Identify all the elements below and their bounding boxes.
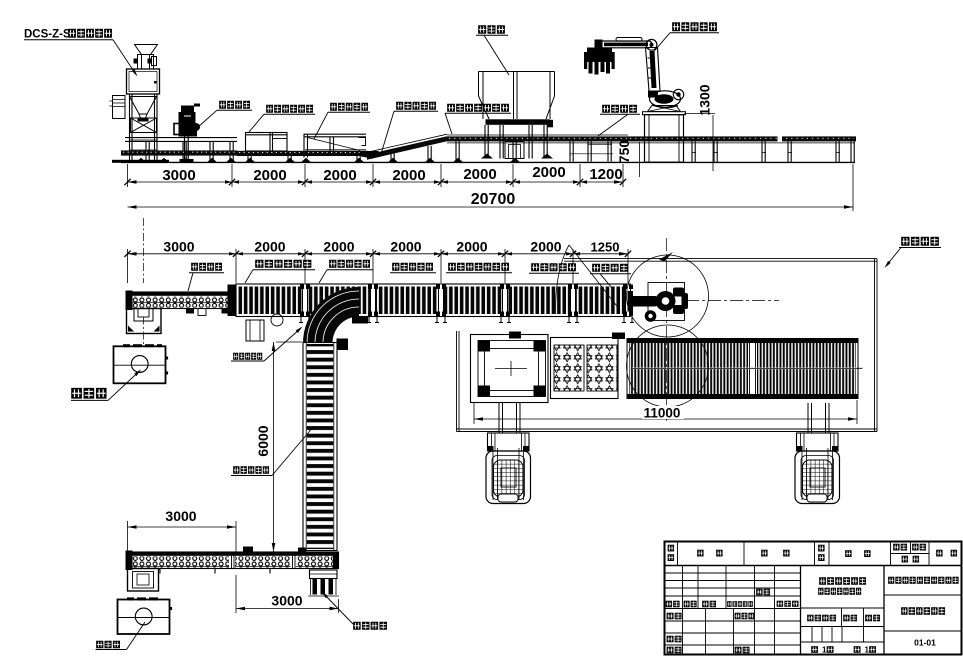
svg-text:2000: 2000 [323,239,354,255]
svg-text:1300: 1300 [697,84,713,115]
svg-text:3000: 3000 [162,167,195,184]
svg-text:6000: 6000 [255,425,271,456]
svg-text:2000: 2000 [456,239,487,255]
svg-text:1: 1 [865,646,870,655]
svg-text:2000: 2000 [390,239,421,255]
svg-text:11000: 11000 [644,406,681,421]
svg-text:1200: 1200 [589,166,622,183]
svg-text:2000: 2000 [254,239,285,255]
svg-text:01-01: 01-01 [914,638,936,648]
svg-text:1250: 1250 [591,240,620,255]
svg-text:2000: 2000 [392,167,425,184]
svg-text:750: 750 [616,140,632,164]
svg-text:2000: 2000 [530,239,561,255]
svg-text:1: 1 [822,646,827,655]
svg-text:2000: 2000 [253,167,286,184]
svg-text:3000: 3000 [163,239,194,255]
svg-text:3000: 3000 [165,508,196,524]
svg-text:2000: 2000 [532,164,565,181]
svg-text:DCS-Z-S: DCS-Z-S [24,29,71,41]
svg-text:2000: 2000 [463,166,496,183]
svg-text:20700: 20700 [471,191,516,208]
svg-text:2000: 2000 [323,167,356,184]
svg-text:3000: 3000 [271,593,302,609]
